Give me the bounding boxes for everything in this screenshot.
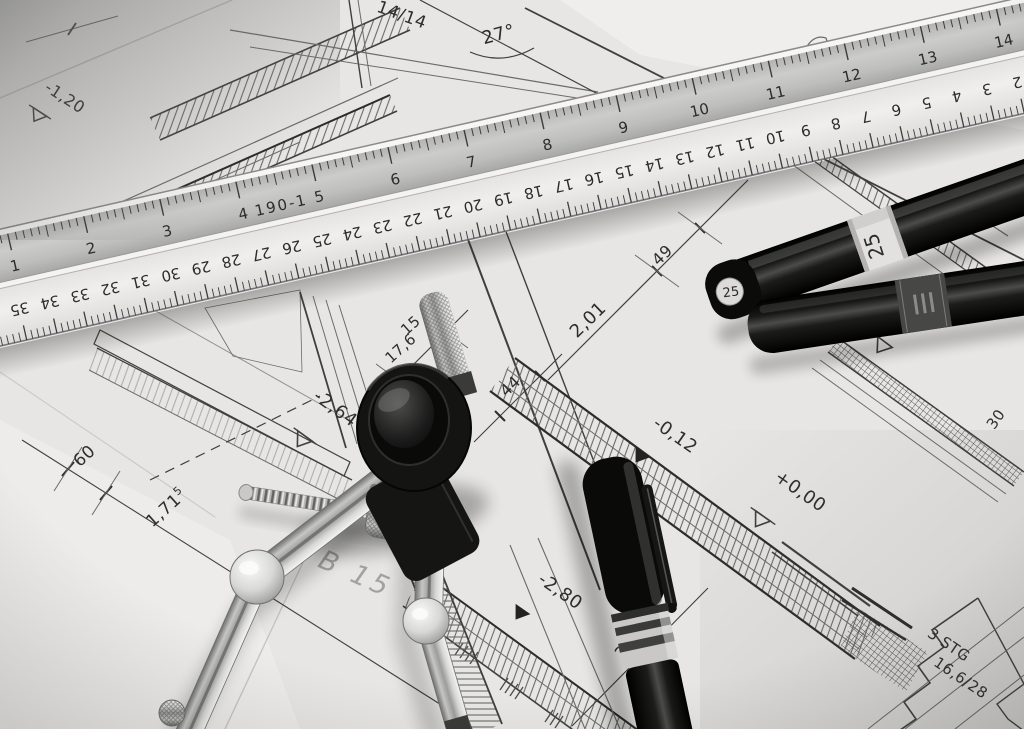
blueprint-photo: 14/14 27° -1,20 2,01 49 44 15 17,6 -2,64… xyxy=(0,0,1024,729)
vignette-overlay xyxy=(0,0,1024,729)
photo-canvas: 14/14 27° -1,20 2,01 49 44 15 17,6 -2,64… xyxy=(0,0,1024,729)
